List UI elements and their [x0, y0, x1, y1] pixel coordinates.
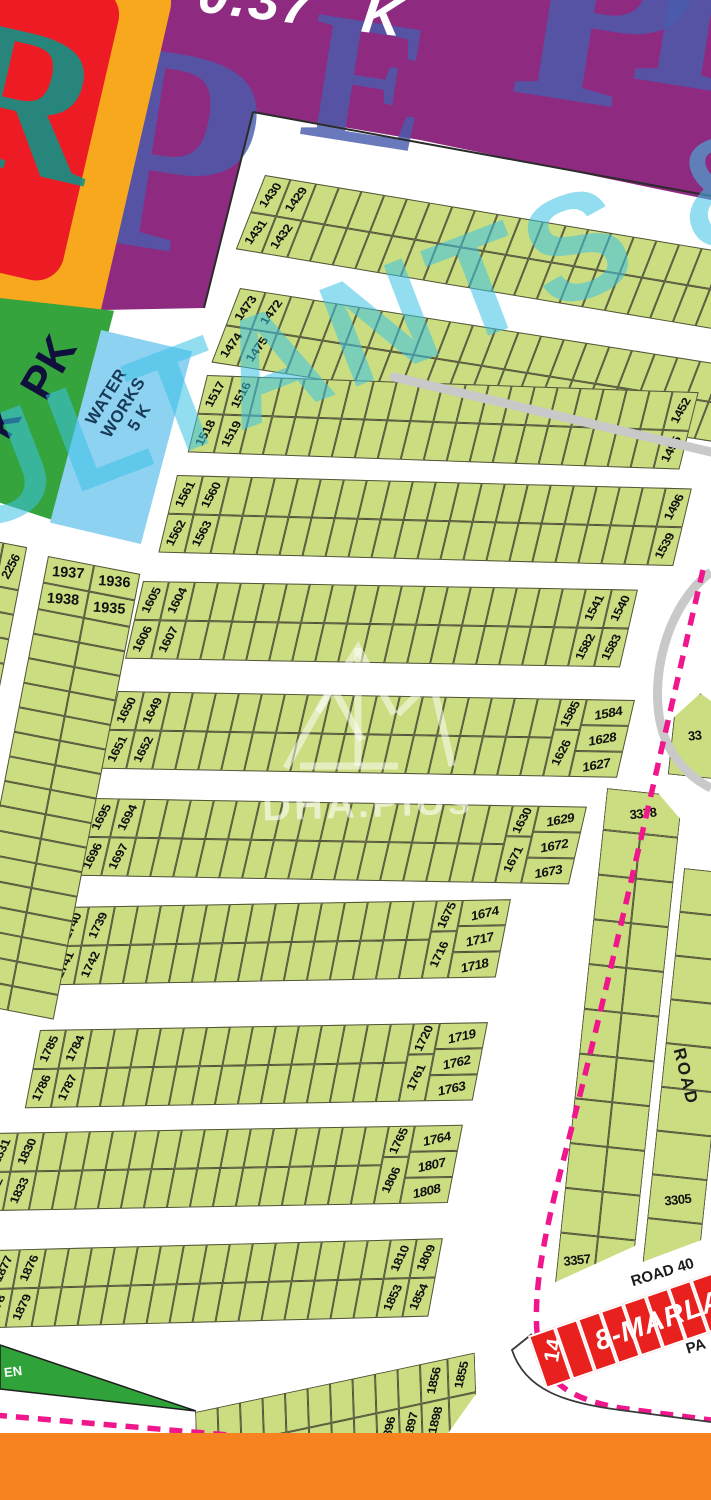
plot-run [77, 1023, 414, 1107]
plot-row [570, 1098, 650, 1151]
plot-number-1784: 1784 [63, 1035, 87, 1063]
plot-number-1584: 1584 [594, 704, 622, 722]
plot-number-1606: 1606 [130, 625, 154, 653]
plot-cell [307, 1383, 331, 1427]
plot-1718: 1718 [448, 951, 501, 978]
plot-row: 33573356 [555, 1233, 636, 1291]
plot-number-1877: 1877 [0, 1255, 15, 1283]
plot-cell [352, 1374, 376, 1418]
plot-strip-K: 18771876187818791810180918531854 [0, 1238, 443, 1328]
plot-number-1936: 1936 [98, 574, 131, 591]
plot-number-1898: 1898 [427, 1407, 445, 1435]
plot-number-1605: 1605 [139, 586, 163, 614]
plot-number-1694: 1694 [115, 804, 139, 832]
plot-number-1716: 1716 [428, 941, 452, 969]
plot-number-1785: 1785 [37, 1035, 61, 1063]
plot-number-1765: 1765 [387, 1127, 411, 1155]
plot-number-1762: 1762 [442, 1052, 470, 1071]
plot-number-1808: 1808 [412, 1181, 440, 1200]
plot-3356: 3356 [593, 1237, 636, 1291]
plot-cell [652, 1131, 711, 1181]
plot-strip-H: 174017391741174216751716167417171718 [48, 899, 511, 985]
plot-3378: 3378 [603, 788, 683, 838]
plot-number-1562: 1562 [164, 519, 189, 547]
plot-cell [631, 878, 673, 927]
plot-cell [603, 1147, 645, 1196]
plot-number-1630: 1630 [510, 807, 534, 835]
plot-cell [0, 586, 19, 615]
green-belt-label: EN [3, 1363, 23, 1380]
plot-number-1720: 1720 [412, 1025, 436, 1053]
plot-cell [0, 635, 9, 664]
plot-cell [636, 834, 678, 883]
plot-number-1650: 1650 [114, 696, 138, 724]
plot-number-1495: 1495 [659, 436, 684, 464]
plot-number-1651: 1651 [105, 735, 129, 763]
plot-map-image: IPEPR R 0.37 K PK K WATER WORKS 5 K 1430… [0, 0, 711, 1500]
plot-1584: 1584 [581, 699, 635, 726]
plot-3357: 3357 [555, 1233, 598, 1287]
plot-number-1563: 1563 [190, 520, 215, 548]
plot-1763: 1763 [425, 1074, 478, 1101]
plot-number-1761: 1761 [405, 1064, 429, 1092]
plot-cell [574, 1054, 616, 1103]
plot-number-1935: 1935 [93, 601, 126, 618]
plot-strip-J: 183118301832183317651806176418071808 [0, 1125, 463, 1211]
plot-row [598, 830, 678, 883]
plot-number-1833: 1833 [8, 1177, 32, 1205]
plot-number-3378: 3378 [629, 805, 657, 821]
plot-number-1856: 1856 [425, 1367, 443, 1395]
plot-cell [666, 999, 711, 1049]
plot-number-1674: 1674 [471, 903, 499, 922]
plot-1855: 1855 [447, 1353, 476, 1398]
plot-strip-I: 178517841786178717201761171917621763 [25, 1022, 488, 1108]
plot-cell [675, 912, 711, 962]
plot-1719: 1719 [435, 1022, 488, 1049]
plot-number-1937: 1937 [52, 565, 85, 582]
plot-number-1627: 1627 [582, 755, 610, 773]
plot-number-1739: 1739 [86, 912, 110, 940]
plot-number-1540: 1540 [608, 595, 632, 623]
plot-1628: 1628 [575, 725, 629, 752]
plot-cell [570, 1098, 612, 1147]
plot-number-3357: 3357 [562, 1252, 590, 1268]
plot-number-1853: 1853 [381, 1284, 404, 1312]
plot-number-1652: 1652 [131, 736, 155, 764]
plot-1762: 1762 [430, 1048, 483, 1075]
plot-number-1717: 1717 [465, 929, 493, 948]
plot-number-1719: 1719 [448, 1026, 476, 1045]
plot-cell: 18561898 [420, 1358, 450, 1443]
plot-number-1604: 1604 [165, 587, 189, 615]
plot-number-1786: 1786 [30, 1074, 54, 1102]
plot-number-1809: 1809 [415, 1244, 438, 1272]
plot-cell: 1855 [447, 1353, 477, 1438]
plot-1717: 1717 [453, 925, 506, 952]
plot-cell [622, 968, 664, 1017]
plot-number-1649: 1649 [140, 697, 164, 725]
green-belt-wedge [0, 1345, 196, 1411]
banner-area-unit: K [359, 0, 409, 49]
plot-number-1626: 1626 [549, 739, 573, 767]
plot-run [152, 692, 561, 777]
plot-1629: 1629 [533, 806, 587, 833]
plot-number-1787: 1787 [56, 1074, 80, 1102]
plot-number-1496: 1496 [662, 493, 687, 521]
plot-number-1541: 1541 [582, 594, 606, 622]
plot-number-1539: 1539 [653, 532, 678, 560]
plot-row [560, 1188, 640, 1241]
plot-1808: 1808 [400, 1177, 453, 1204]
plot-number-1876: 1876 [18, 1254, 41, 1282]
plot-cell [612, 1058, 654, 1107]
plot-strip-E: 16051604160616071541154015821583 [125, 581, 638, 667]
plot-cell [262, 1393, 286, 1437]
plot-number-1697: 1697 [106, 843, 130, 871]
plot-number-1582: 1582 [573, 633, 597, 661]
plot-row [584, 964, 664, 1017]
plot-end-block: 16751716167417171718 [422, 899, 511, 979]
plot-number-1628: 1628 [588, 730, 616, 748]
plot-cell [375, 1369, 399, 1413]
plot-end-block: 17201761171917621763 [399, 1022, 488, 1102]
plot-row [593, 875, 673, 928]
plot-cell [449, 1392, 478, 1437]
plot-1807: 1807 [405, 1151, 458, 1178]
plot-number-1807: 1807 [417, 1155, 445, 1174]
plot-cell [598, 1192, 640, 1241]
plot-1856: 1856 [420, 1358, 449, 1403]
plot-number-1854: 1854 [407, 1283, 430, 1311]
plot-run [29, 1126, 389, 1210]
plot-number-1607: 1607 [156, 626, 180, 654]
plot-cell [330, 1379, 354, 1423]
plot-cell [0, 659, 4, 688]
plot-number-1629: 1629 [546, 810, 574, 828]
plot-run [31, 1240, 390, 1327]
plot-cell [593, 875, 635, 924]
bottom-orange-bar [0, 1433, 711, 1500]
plot-cell [588, 919, 630, 968]
red-plot-number: 14 [540, 1337, 567, 1364]
plot-number-1855: 1855 [453, 1361, 471, 1389]
plot-number-1672: 1672 [540, 836, 568, 854]
plot-number-1810: 1810 [389, 1245, 412, 1273]
plot-cell [560, 1188, 602, 1237]
plot-strip-F: 165016491651165215851626158416281627 [100, 691, 635, 778]
plot-number-33: 33 [688, 728, 703, 742]
plot-run [177, 582, 586, 667]
plot-number-1742: 1742 [79, 951, 103, 979]
plot-row [574, 1054, 654, 1107]
plot-number-1718: 1718 [460, 955, 488, 974]
plot-number-3305: 3305 [663, 1191, 691, 1207]
plot-number-1673: 1673 [534, 862, 562, 880]
plot-strip-D: 156115601562156314961539 [158, 475, 691, 566]
plot-number-1675: 1675 [435, 902, 459, 930]
plot-cell [0, 610, 14, 639]
plot-number-1764: 1764 [423, 1129, 451, 1148]
plot-cell [584, 964, 626, 1013]
plot-1673: 1673 [521, 858, 575, 885]
plot-cell [565, 1143, 607, 1192]
plot-number-1583: 1583 [599, 634, 623, 662]
plot-number-1830: 1830 [15, 1138, 39, 1166]
plot-cell [670, 956, 711, 1006]
plot-cell [397, 1364, 421, 1408]
watermark-brand-text: DHA.PlUs [261, 778, 473, 830]
plot-cell [598, 830, 640, 879]
plot-row [588, 919, 668, 972]
plot-3305: 3305 [647, 1174, 707, 1224]
plot-number-3356: 3356 [600, 1256, 628, 1272]
plot-number-1806: 1806 [380, 1166, 404, 1194]
plot-number-1560: 1560 [199, 481, 224, 509]
red-marla-strip: 14 8-MARLA [528, 1264, 711, 1389]
plot-cell [679, 868, 711, 918]
plot-number-1452: 1452 [669, 397, 694, 425]
plot-number-1671: 1671 [501, 846, 525, 874]
plot-wedge-33: 33 [668, 691, 711, 779]
plot-number-1879: 1879 [10, 1294, 33, 1322]
plot-run [100, 900, 437, 984]
plot-cell [626, 923, 668, 972]
plot-1627: 1627 [569, 751, 623, 778]
plot-cell [617, 1013, 659, 1062]
plot-number-1763: 1763 [437, 1078, 465, 1097]
plot-number-1938: 1938 [47, 592, 80, 609]
plot-cell [285, 1388, 309, 1432]
plot-cell [579, 1009, 621, 1058]
plot-end-block: 17651806176418071808 [374, 1125, 463, 1205]
plot-cell [607, 1102, 649, 1151]
plot-run [210, 476, 665, 565]
plot-1764: 1764 [410, 1125, 463, 1152]
plot-1674: 1674 [458, 899, 511, 926]
plot-number-1585: 1585 [558, 700, 582, 728]
plot-row [579, 1009, 659, 1062]
plot-1672: 1672 [527, 832, 581, 859]
plot-row [565, 1143, 645, 1196]
